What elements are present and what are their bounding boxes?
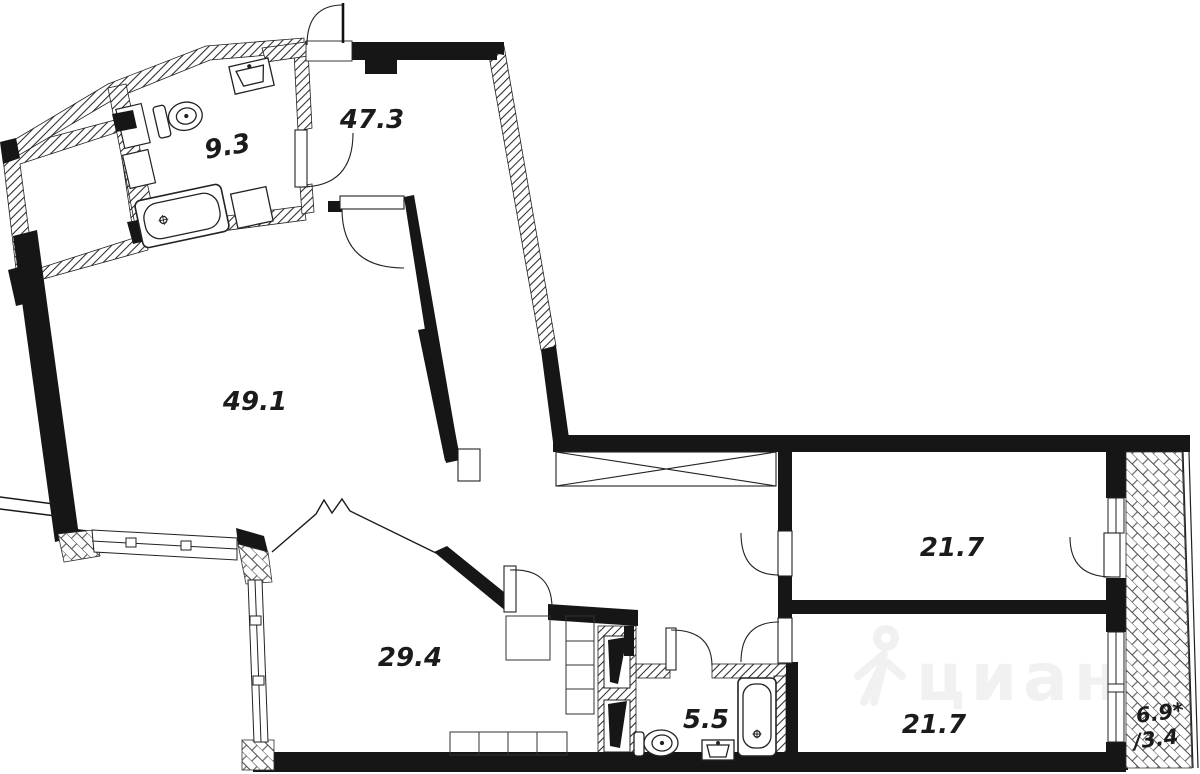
floor-plan: циан (0, 0, 1200, 774)
balcony-pier-a (1106, 452, 1128, 498)
label-bedroom-bottom: 21.7 (902, 710, 967, 740)
bedroom-divider-wall (785, 600, 1112, 614)
sink-bottom-icon (702, 740, 734, 760)
bedroom-bottom-window (1108, 632, 1124, 742)
bath2-top-wall-left (636, 664, 670, 678)
label-bathroom-bottom: 5.5 (683, 705, 729, 735)
corner-black-b (112, 110, 137, 132)
label-kitchen-living: 29.4 (378, 643, 442, 673)
corridor-top-wall (553, 435, 1190, 452)
label-hall-top: 47.3 (339, 105, 404, 135)
label-living-room: 49.1 (222, 387, 287, 417)
corridor-right-wall-a (778, 452, 792, 533)
label-bedroom-top: 21.7 (920, 533, 985, 563)
balcony-pier-b (1106, 578, 1128, 632)
floor-plan-page: циан (0, 0, 1200, 774)
bathtub-bottom-icon (738, 678, 776, 756)
shower-square-icon (231, 187, 273, 229)
balcony-pier-c (1106, 742, 1128, 770)
corridor-right-wall-b (778, 575, 792, 622)
corridor-right-wall-c (786, 662, 798, 754)
toilet-bottom-icon (634, 730, 678, 756)
shaft-top-strip (624, 626, 634, 656)
bottom-wall (253, 752, 1126, 772)
watermark-text: циан (916, 639, 1125, 716)
bedroom-top-window (1108, 498, 1124, 533)
bathroom-right-wall-lower (300, 184, 314, 214)
